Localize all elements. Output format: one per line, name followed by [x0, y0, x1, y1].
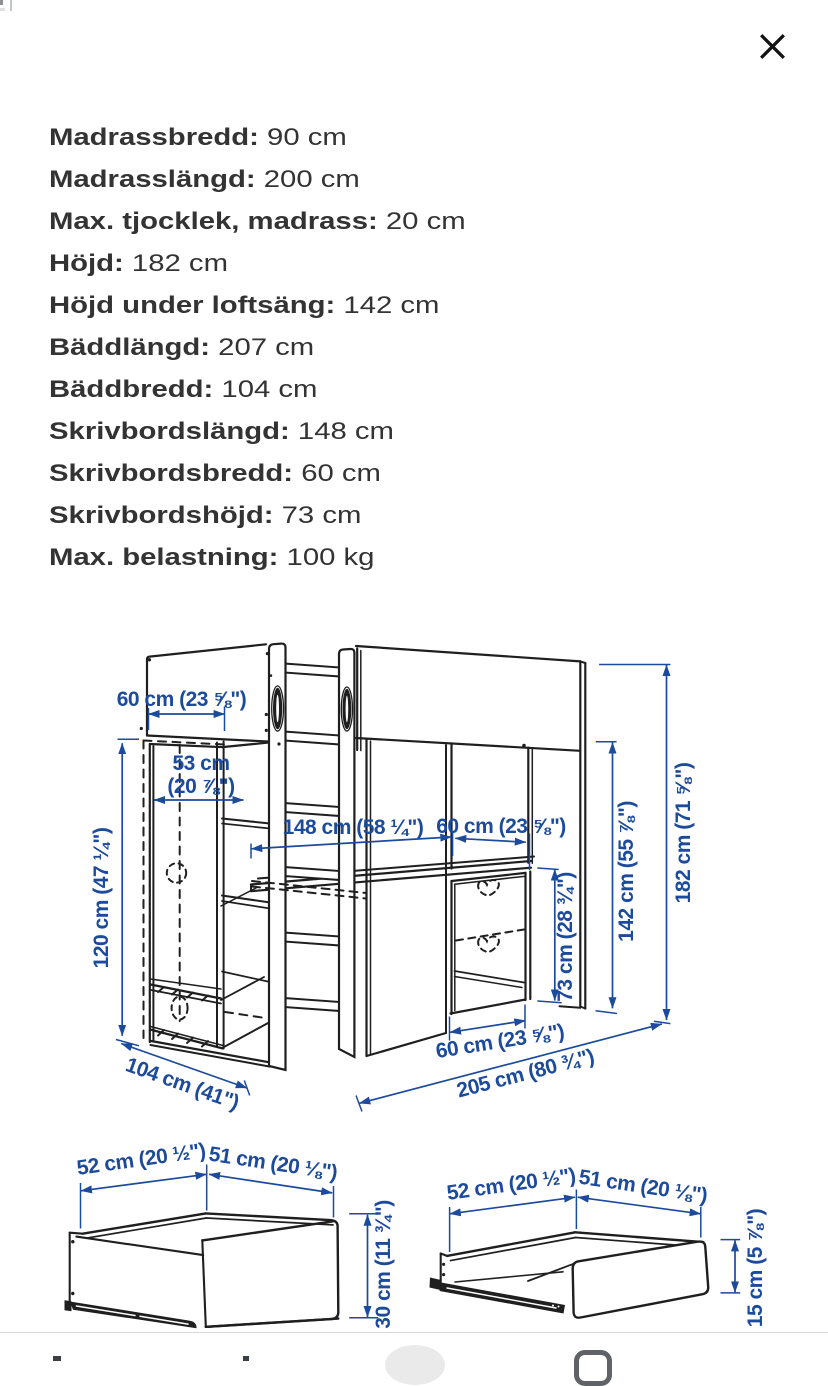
svg-text:51 cm (20 ⅛"): 51 cm (20 ⅛"): [207, 1143, 339, 1185]
svg-text:51 cm (20 ⅛"): 51 cm (20 ⅛"): [577, 1166, 709, 1208]
svg-text:73 cm (28 ¾"): 73 cm (28 ¾"): [554, 872, 577, 1002]
svg-text:60 cm (23 ⅝"): 60 cm (23 ⅝"): [436, 815, 566, 838]
svg-text:182 cm (71 ⅝"): 182 cm (71 ⅝"): [672, 763, 695, 904]
svg-text:142 cm (55 ⅞"): 142 cm (55 ⅞"): [615, 801, 638, 942]
svg-text:104 cm (41"): 104 cm (41"): [123, 1053, 242, 1114]
svg-text:30 cm (11 ¾"): 30 cm (11 ¾"): [372, 1200, 395, 1328]
svg-text:60 cm (23 ⅝"): 60 cm (23 ⅝"): [117, 688, 247, 711]
svg-text:52 cm (20 ½"): 52 cm (20 ½"): [75, 1139, 206, 1180]
svg-text:53 cm: 53 cm: [172, 752, 229, 775]
svg-text:148 cm (58 ¼"): 148 cm (58 ¼"): [283, 816, 424, 839]
svg-text:(20 ⅞"): (20 ⅞"): [167, 775, 234, 798]
svg-text:120 cm (47 ¼"): 120 cm (47 ¼"): [90, 828, 113, 969]
svg-text:15 cm (5 ⅞"): 15 cm (5 ⅞"): [744, 1209, 767, 1327]
